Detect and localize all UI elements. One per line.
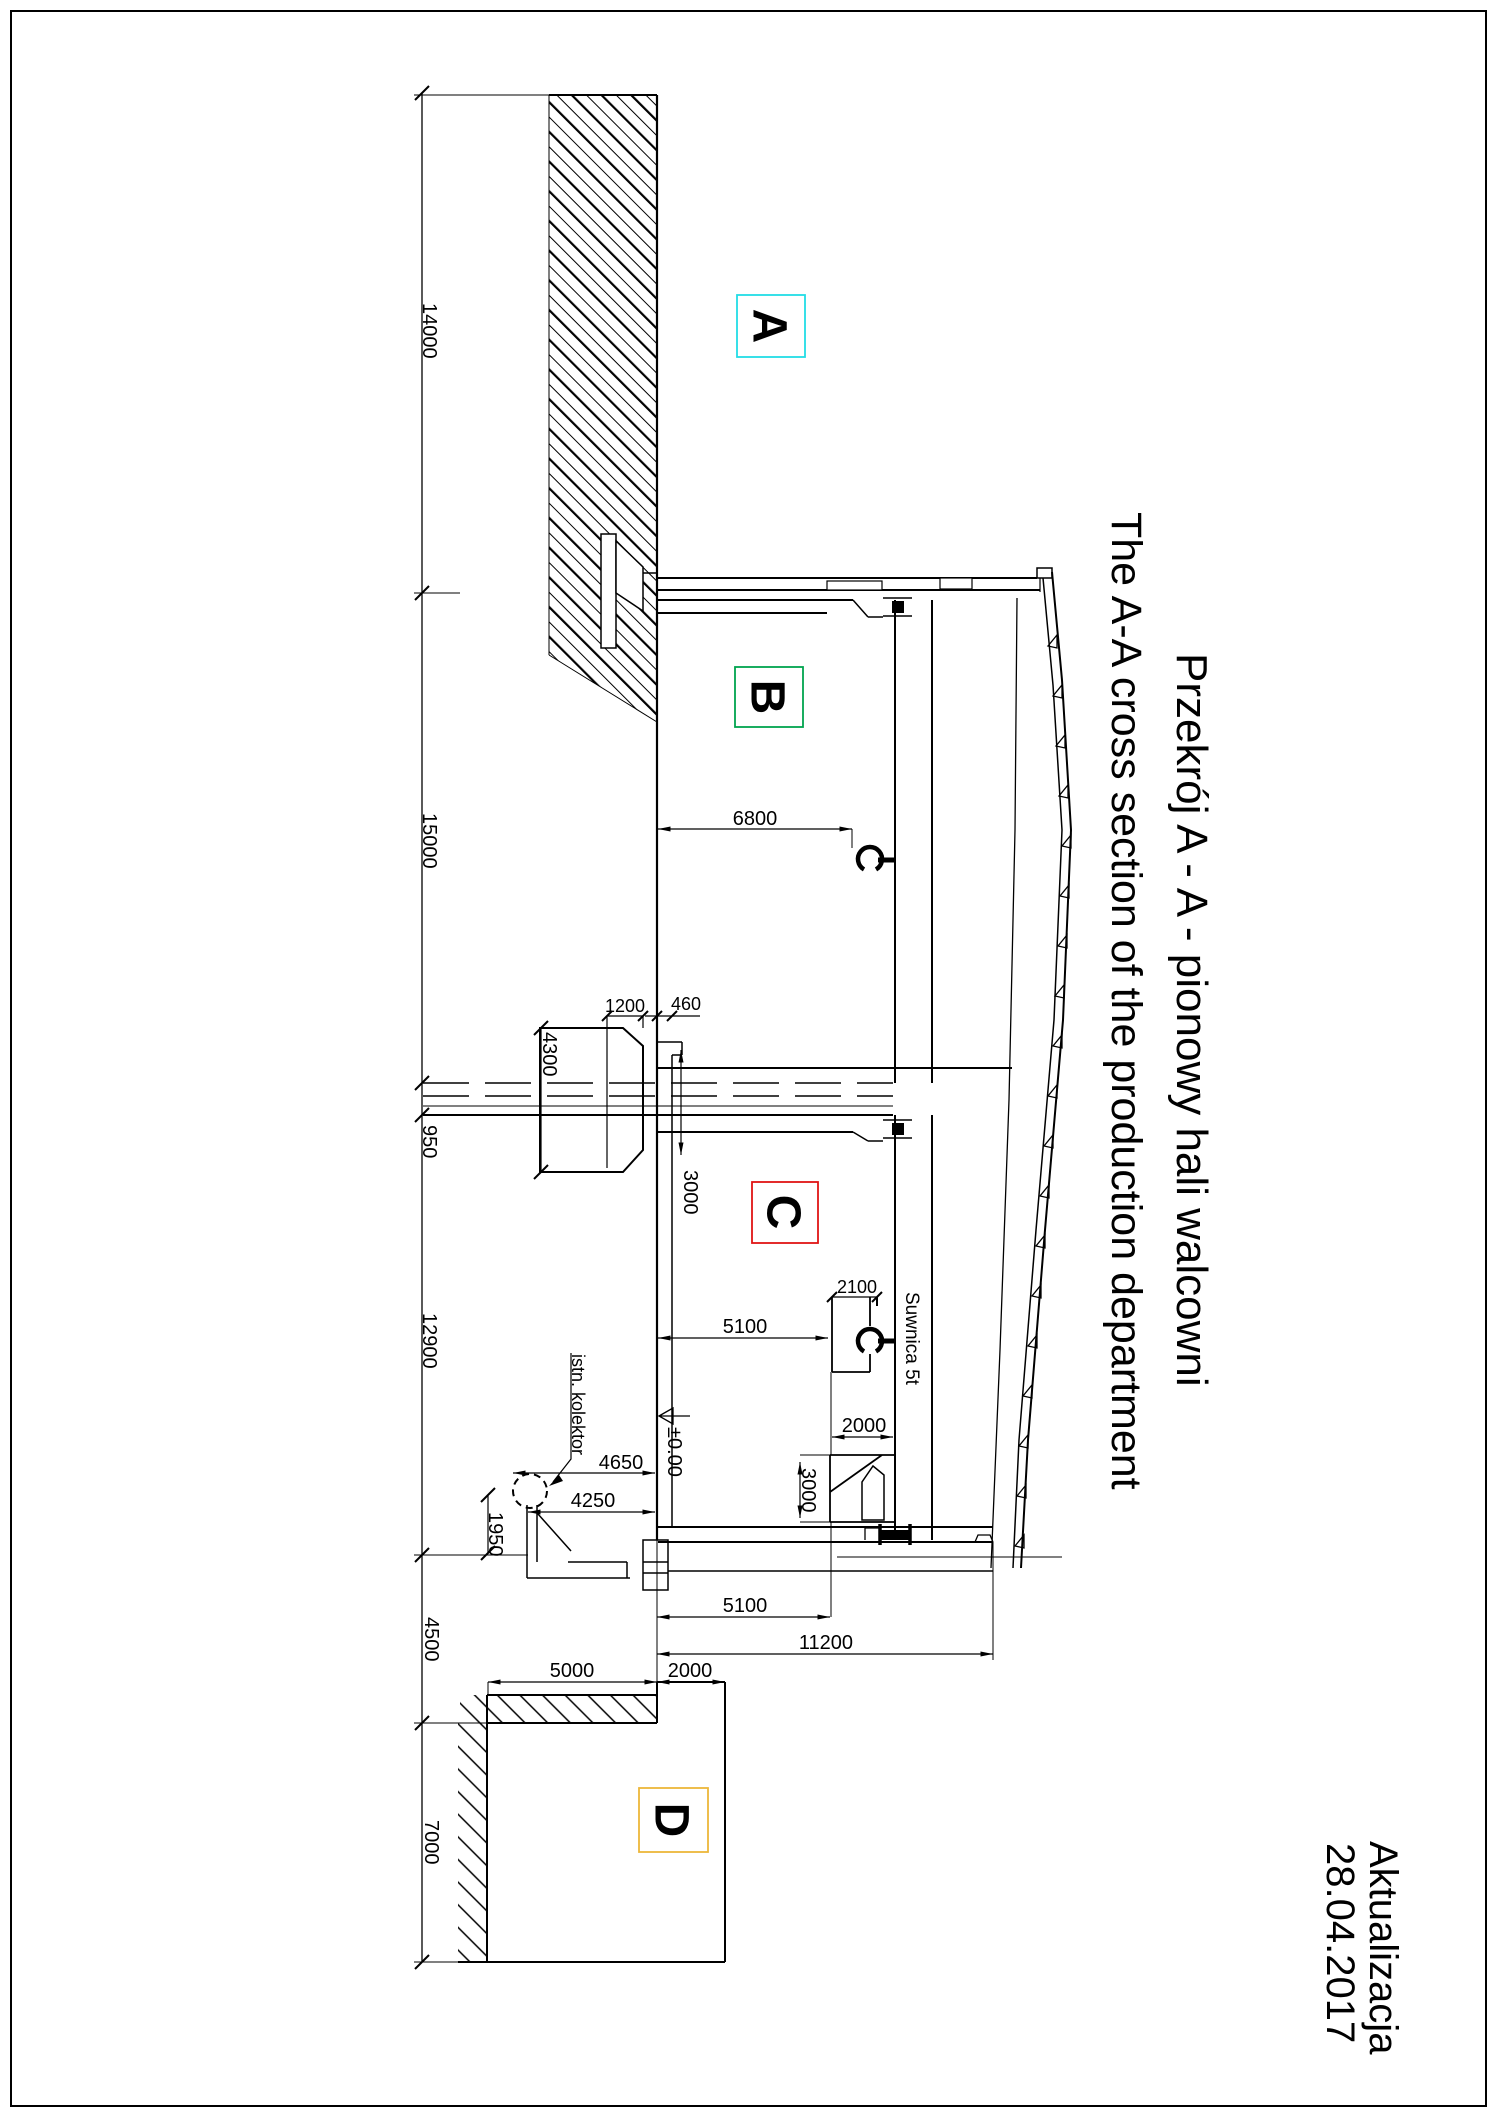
support-bracket-plate (862, 1466, 884, 1520)
dim-11200: 11200 (799, 1632, 853, 1654)
update-label: Aktualizacja (1361, 1841, 1405, 2055)
dim-1950: 1950 (484, 1512, 506, 1557)
section-label-a: A (737, 295, 805, 357)
title-english: The A-A cross section of the production … (1102, 512, 1150, 1490)
dim-5000: 5000 (550, 1660, 595, 1682)
dim-12900: 12900 (418, 1313, 440, 1369)
collector-label: istn. kolektor (568, 1354, 588, 1455)
dim-3000-bracket: 3000 (797, 1468, 819, 1513)
head-box-inner-lines (607, 1016, 643, 1168)
hall-c-outer-wall (658, 1524, 1062, 1571)
eave-truss-triangles (1015, 635, 1071, 1548)
dim-4250: 4250 (571, 1490, 616, 1512)
hook-bracket (832, 1297, 870, 1372)
pit-wall-hatch (458, 1723, 487, 1962)
dim-6800: 6800 (733, 808, 778, 830)
section-letter-d: D (645, 1803, 698, 1838)
section-letter-c: C (757, 1195, 810, 1230)
bc-wall-jog (853, 1132, 883, 1141)
crane-label: Suwnica 5t (901, 1292, 922, 1386)
dim-15000: 15000 (418, 813, 440, 869)
dim-4650: 4650 (599, 1452, 644, 1474)
eave-third-line (991, 598, 1017, 1568)
dim-14000: 14000 (418, 303, 440, 359)
dimension-chain (414, 86, 549, 1969)
bridge-lines (895, 600, 932, 1540)
section-label-b: B (735, 667, 803, 727)
section-letter-b: B (741, 680, 794, 715)
level-label: ±0.00 (663, 1427, 685, 1477)
section-letter-a: A (743, 309, 796, 344)
section-label-d: D (639, 1788, 708, 1852)
dim-2100: 2100 (837, 1277, 877, 1297)
band-panel-1 (827, 581, 882, 590)
outer-wall-lines (658, 1527, 993, 1542)
level-mark-symbol (659, 1408, 690, 1424)
bc-wall-lines (423, 1068, 1012, 1141)
dim-7000: 7000 (420, 1820, 442, 1865)
ab-wall-band (657, 568, 1052, 617)
pit-slab-hatch (460, 1695, 657, 1723)
dim-4300: 4300 (538, 1032, 560, 1077)
dimension-lines (481, 829, 993, 1695)
roof-eave-edge (991, 572, 1071, 1568)
update-date: 28.04.2017 (1318, 1843, 1362, 2043)
dim-460: 460 (671, 994, 701, 1014)
cross-section-drawing: 14000 15000 950 12900 4500 7000 4300 300… (0, 0, 1497, 2117)
eave-outer-line (1021, 572, 1071, 1568)
collector-circle (513, 1474, 547, 1508)
dim-5100-c: 5100 (723, 1316, 768, 1338)
wall-footing-lines (643, 1540, 668, 1590)
band-panel-2 (940, 578, 972, 589)
dim-4500: 4500 (420, 1617, 442, 1662)
dim-5100-d: 5100 (723, 1595, 768, 1617)
wall-a-hatched (549, 95, 657, 722)
dim-950: 950 (418, 1125, 440, 1158)
band-gutter-jog (853, 600, 883, 617)
bc-wall-outer-lines (658, 1068, 1012, 1132)
section-label-c: C (752, 1182, 818, 1243)
collector-leader-arrow (549, 1475, 563, 1486)
wall-a-foundation-stem (601, 534, 616, 648)
dim-2000-c: 2000 (842, 1415, 887, 1437)
eave-inner-line (1013, 578, 1062, 1568)
dim-2000-d: 2000 (668, 1660, 713, 1682)
title-polish: Przekrój A - A - pionowy hali walcowni (1167, 653, 1216, 1387)
dim-3000-wall: 3000 (679, 1170, 701, 1215)
bc-rail-web (892, 1123, 904, 1135)
drawing-page: 14000 15000 950 12900 4500 7000 4300 300… (0, 0, 1497, 2117)
crane-bridges (830, 600, 932, 1540)
left-foundation-lines (527, 1505, 630, 1578)
band-rail-web (892, 601, 904, 613)
band-corner-cap (1037, 568, 1052, 578)
dim-1200: 1200 (605, 996, 645, 1016)
